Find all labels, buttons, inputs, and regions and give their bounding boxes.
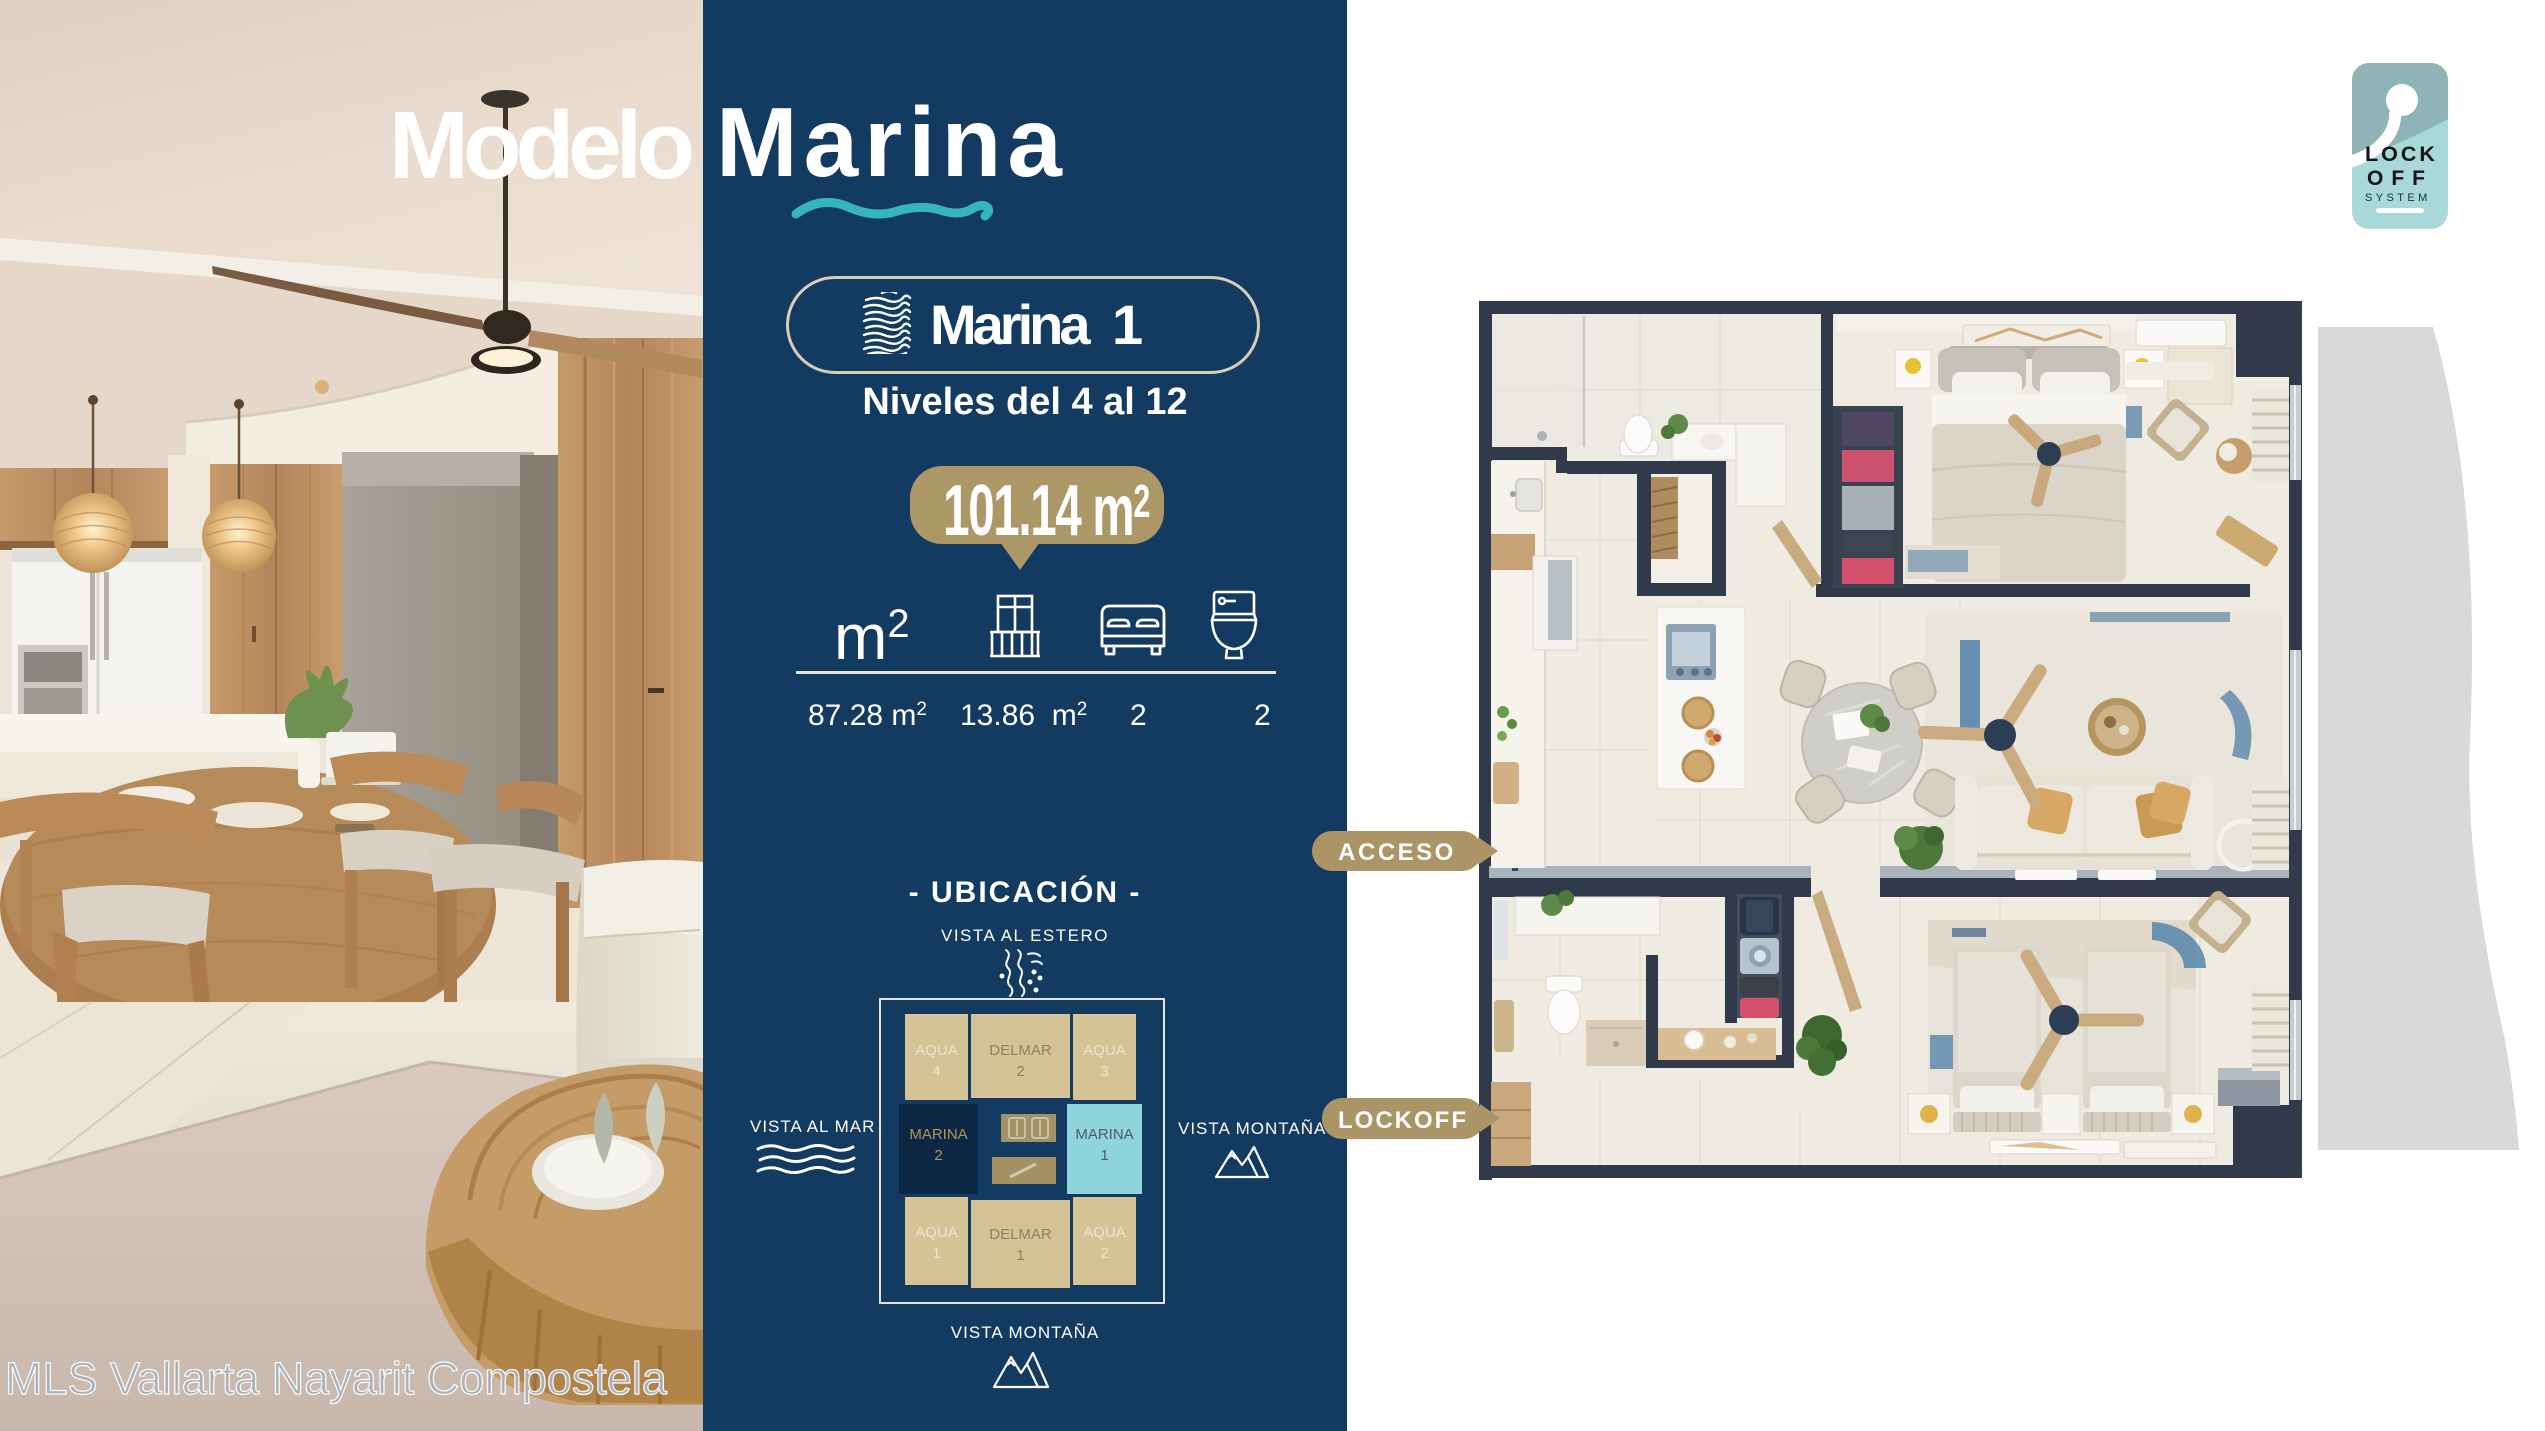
svg-text:SYSTEM: SYSTEM — [2365, 192, 2431, 204]
svg-text:OFF: OFF — [2367, 167, 2433, 190]
svg-text:MLS Vallarta Nayarit Compostel: MLS Vallarta Nayarit Compostela — [5, 1353, 668, 1404]
svg-text:Modelo: Modelo — [389, 92, 691, 199]
svg-text:LOCK: LOCK — [2365, 142, 2438, 166]
